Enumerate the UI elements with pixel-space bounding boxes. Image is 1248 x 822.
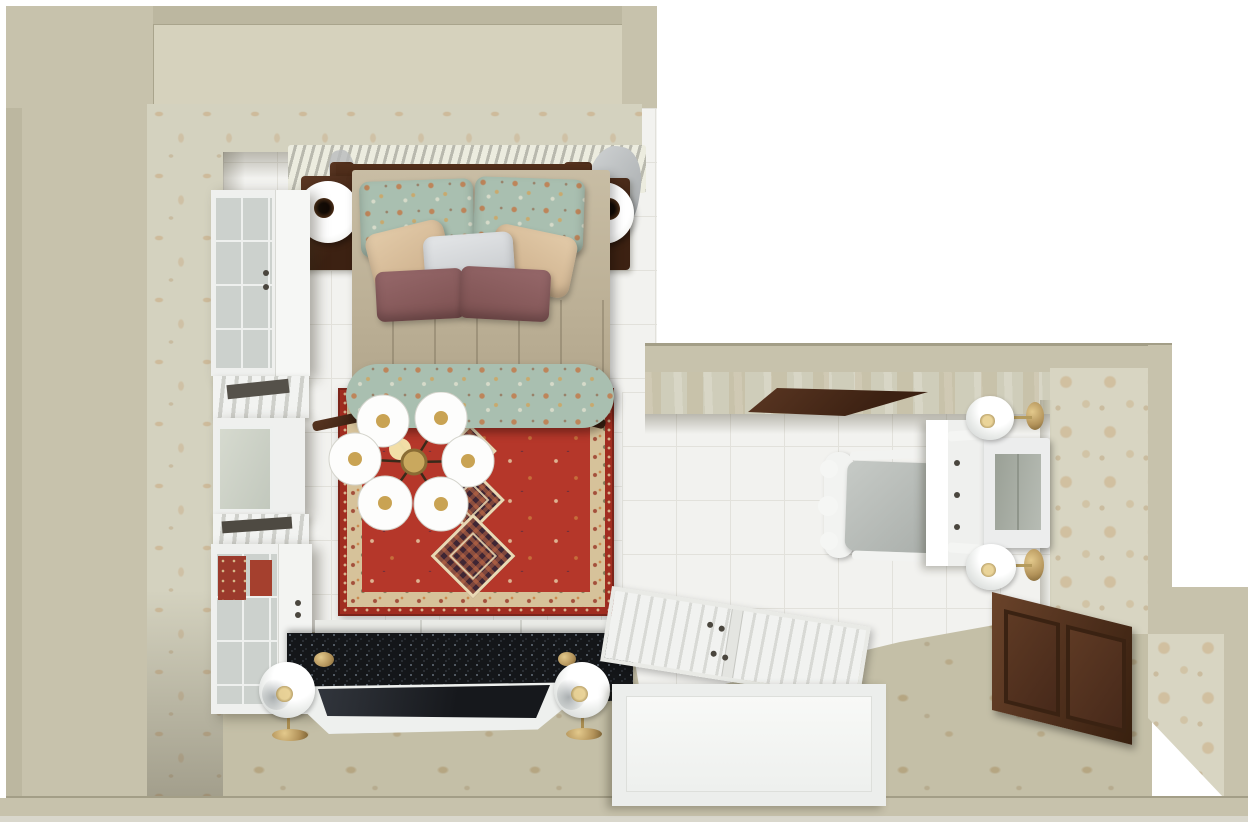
wardrobe-shelf-2 (213, 514, 309, 544)
outside-area-notch (1172, 345, 1248, 587)
wardrobe-lower-knob-2 (295, 612, 301, 618)
wall-left (22, 108, 147, 798)
wall-sconce-lamp-bottom (966, 544, 1016, 590)
shelf-papers-2 (222, 517, 293, 534)
wardrobe-upper-knob-2 (263, 284, 269, 290)
table-lamp-left-shade-hole (314, 198, 334, 218)
floorplan-render (0, 0, 1248, 822)
wardrobe-middle (213, 418, 305, 516)
console-knob-left (314, 652, 334, 667)
damask-wall-right (1050, 368, 1150, 634)
white-wardrobe-knob-2 (718, 625, 725, 632)
floor-lamp-right-base (566, 728, 602, 740)
lamp-left-bulb (276, 686, 293, 703)
television-screen (318, 685, 550, 718)
sphere-floor-lamp-right (554, 662, 610, 718)
wall-bottom-baseboard (0, 816, 1248, 822)
vanity-chair-ornament-1 (820, 460, 838, 478)
vanity-chair-ornament-3 (820, 532, 838, 550)
floor-lamp-left-base (272, 729, 308, 741)
wardrobe-middle-glass (217, 426, 273, 512)
shelf-papers-1 (226, 379, 289, 399)
wall-right-edge-band (1224, 634, 1248, 798)
vanity-drawer-knob-3 (954, 524, 960, 530)
wardrobe-upper-knob (263, 270, 269, 276)
wall-top-left-block (6, 6, 153, 108)
vanity-chair-ornament-2 (818, 496, 838, 516)
white-wardrobe-front (612, 684, 886, 806)
door-panel-inset-left (1004, 609, 1060, 717)
wardrobe-lower-knob (295, 600, 301, 606)
wardrobe-lower-red-fabric-2 (250, 560, 272, 596)
wardrobe-lower-red-fabric (218, 556, 246, 600)
sphere-floor-lamp-left (259, 662, 315, 718)
vanity-mirror-divider (1017, 454, 1019, 530)
wall-top-recessed-panel (153, 24, 655, 108)
wardrobe-shelf-1 (213, 376, 309, 418)
white-wardrobe-knob-3 (710, 650, 717, 657)
wardrobe-upper (211, 190, 310, 376)
outside-area-top-right (657, 0, 1248, 345)
wardrobe-upper-front (275, 190, 310, 376)
white-wardrobe-knob-1 (707, 621, 714, 628)
mauve-pillow-left (375, 268, 465, 323)
vanity-drawer-knob-1 (954, 460, 960, 466)
door-panel-inset-right (1066, 624, 1126, 733)
wall-left-outer-edge (6, 108, 22, 798)
white-wardrobe-door-rail (721, 609, 743, 678)
sconce-bottom-bulb (981, 563, 996, 577)
lamp-right-bulb (571, 686, 588, 703)
wall-top-strip (153, 6, 657, 26)
mauve-pillow-right (459, 266, 552, 323)
vanity-drawer-knob-2 (954, 492, 960, 498)
sconce-top-bulb (980, 414, 994, 427)
vanity-mirror (984, 438, 1050, 548)
wall-sconce-lamp-top (966, 396, 1014, 440)
wall-notch-band (1148, 587, 1248, 634)
ceiling-chandelier (326, 392, 502, 536)
wardrobe-upper-glass-doors (214, 196, 272, 368)
wall-annex-right-top-surface (1148, 345, 1172, 588)
white-wardrobe-front-panel (626, 696, 872, 792)
chandelier-hub (402, 450, 426, 474)
